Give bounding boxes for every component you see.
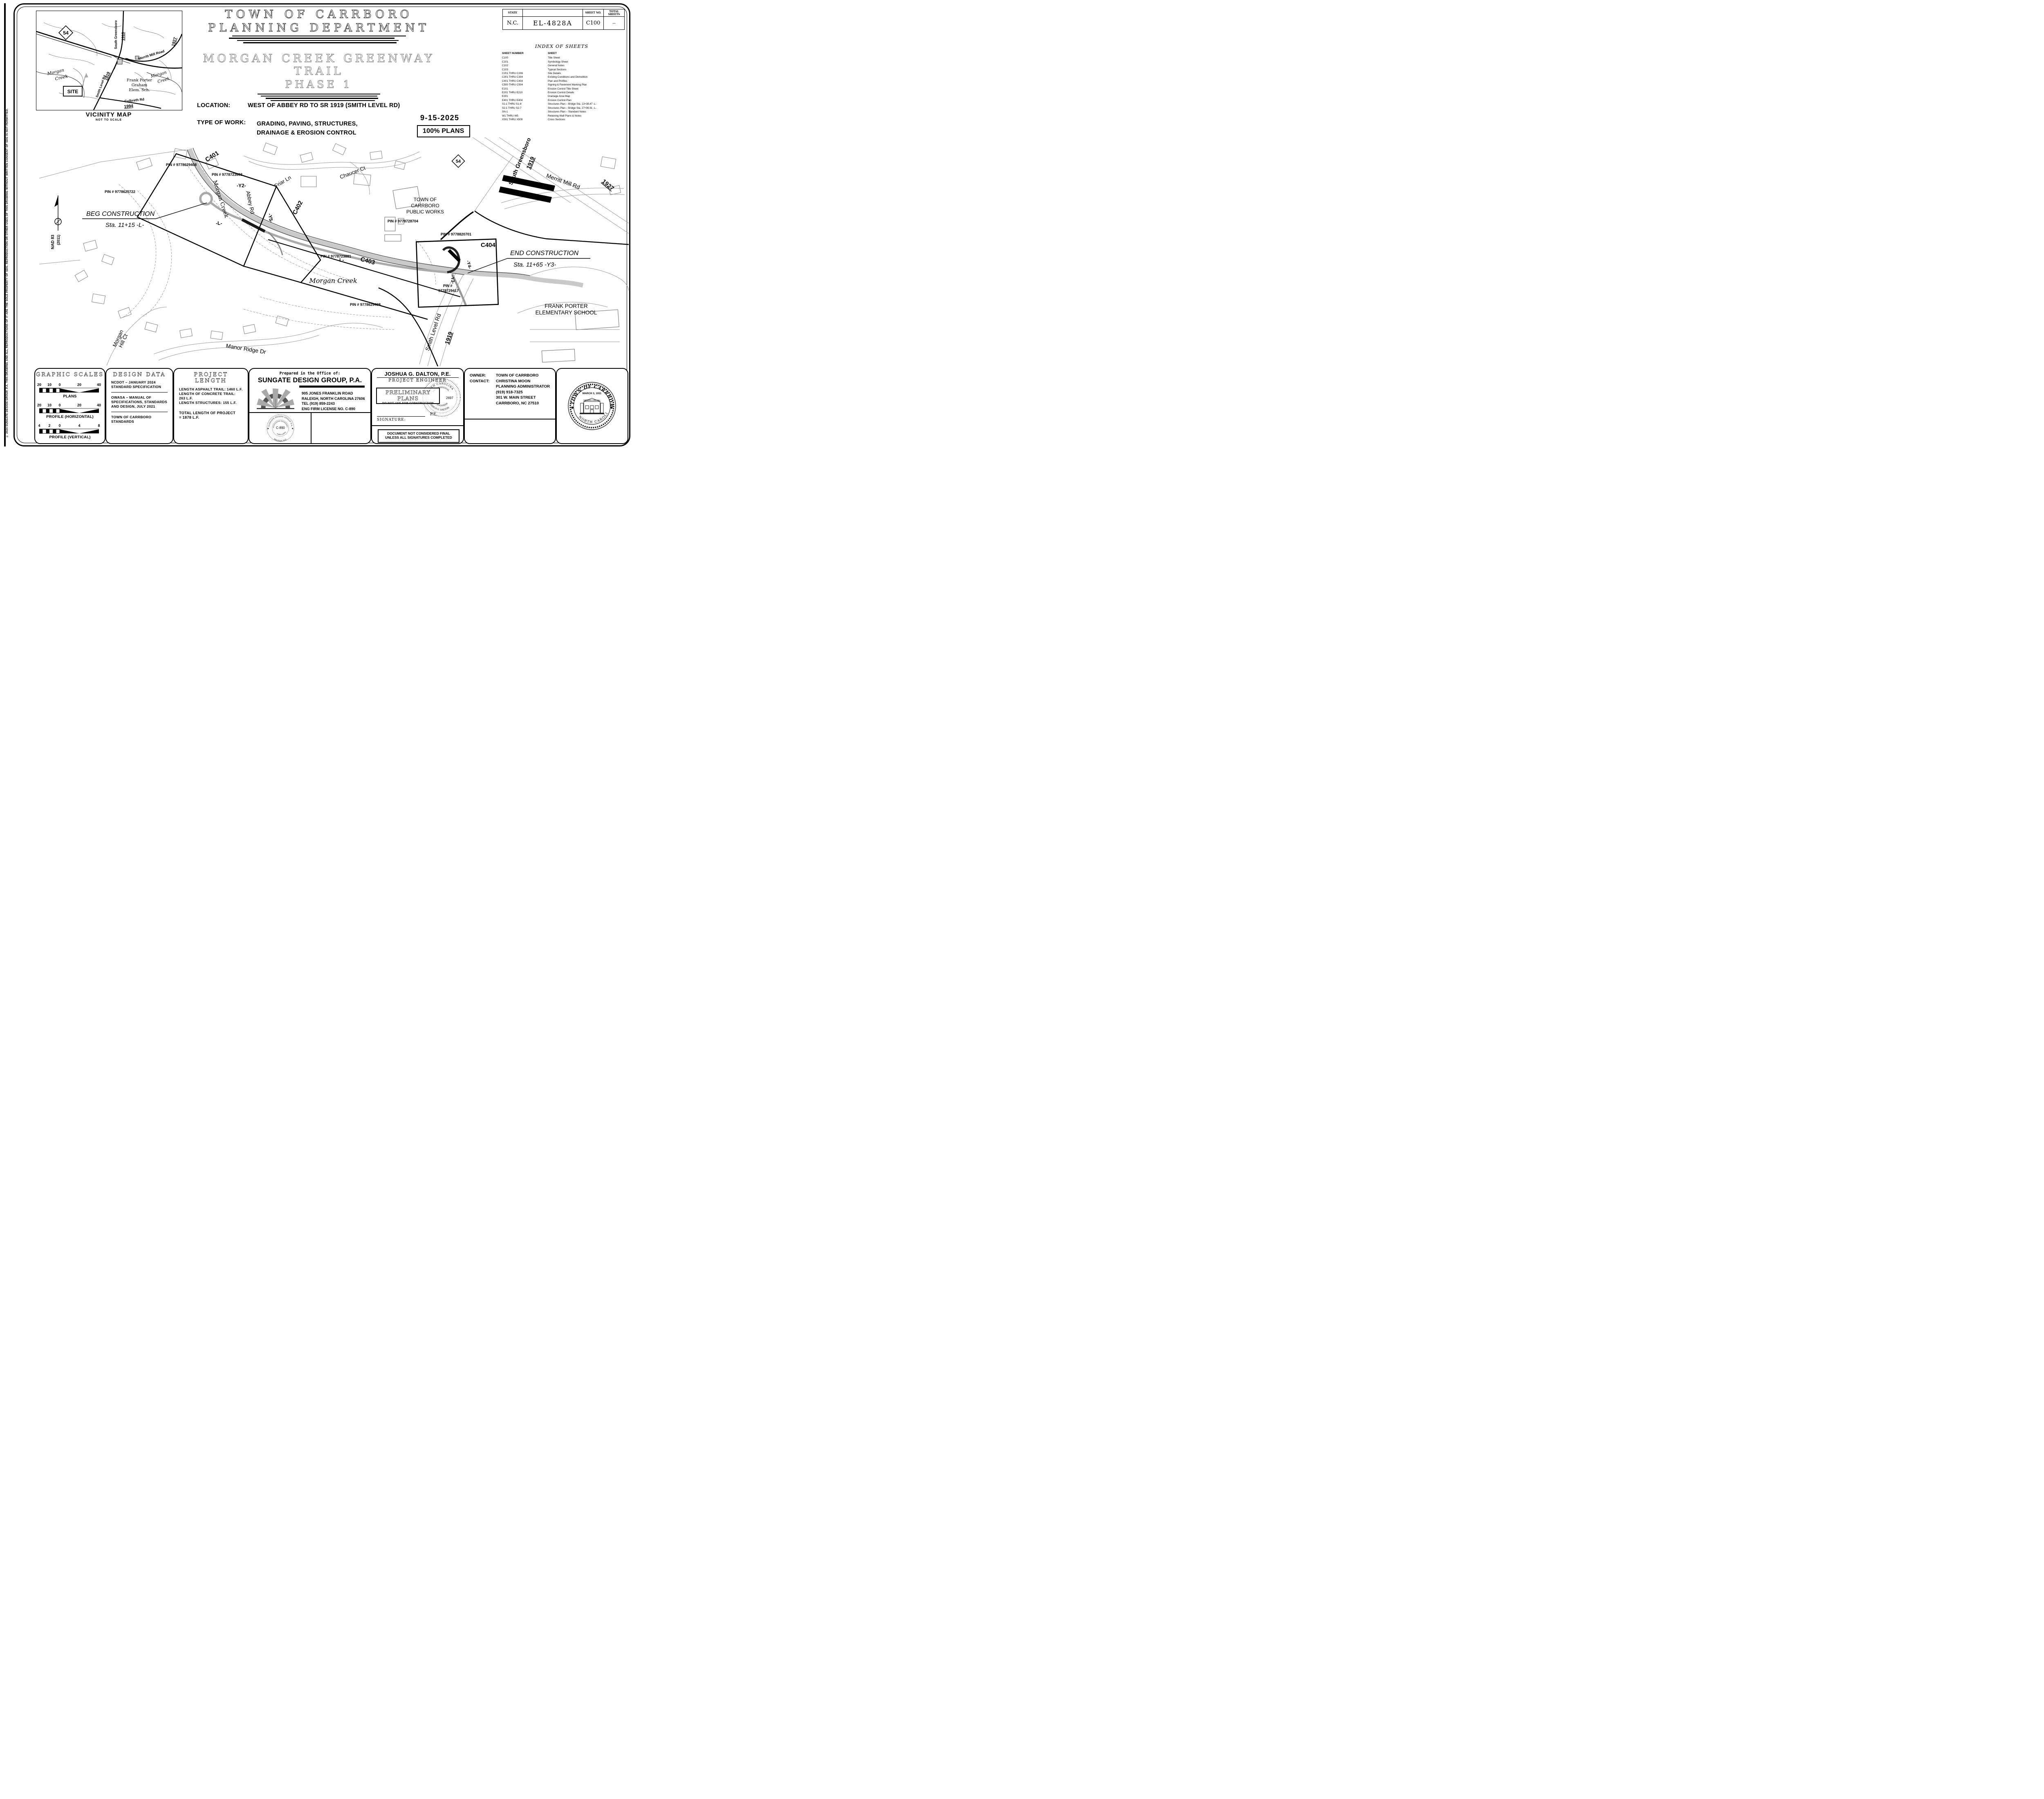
scale-tick: 20 <box>77 403 81 407</box>
index-name: Erosion Control Details <box>548 91 621 94</box>
plan-viewport-c401 <box>137 154 276 266</box>
firm-seal-city: RALEIGH, N.C. <box>273 438 287 442</box>
plan-c404-label: C404 <box>481 242 496 249</box>
design-data-box: DESIGN DATA NCDOT – JANUARY 2024 STANDAR… <box>105 368 173 444</box>
design-data-item-town: TOWN OF CARRBORO STANDARDS <box>111 415 168 424</box>
north-arrow-icon <box>54 195 61 231</box>
plan-viewport-edge <box>244 266 301 283</box>
index-name: Signing & Pavement Marking Plan <box>548 83 621 87</box>
plan-route54-shield: 54 <box>452 155 464 167</box>
agency-title-line1: TOWN OF CARRBORO <box>192 8 446 21</box>
plan-y2-label: -Y2- <box>237 183 246 188</box>
plan-school-2: ELEMENTARY SCHOOL <box>536 310 597 316</box>
project-no-value: EL-4828A <box>523 17 583 30</box>
index-num: C301 THRU C304 <box>502 75 545 79</box>
vicinity-merritt-label: Merritt Mill Road <box>138 49 165 61</box>
sheet-no-label: SHEET NO. <box>583 9 604 17</box>
scale-tick: 2 <box>48 424 50 428</box>
plan-date: 9-15-2025 <box>420 114 459 122</box>
svg-text:RALEIGH, N.C.: RALEIGH, N.C. <box>273 438 287 442</box>
plan-nad83-label: NAD 83 <box>51 235 55 249</box>
index-num: E101 <box>502 87 545 91</box>
contact-label: CONTACT: <box>470 379 496 384</box>
plan-y3-label: -Y3- <box>450 275 455 284</box>
scale-bar-graphic <box>39 428 101 434</box>
index-num: C401 THRU C404 <box>502 79 545 83</box>
index-name: Erosion Control Plan <box>548 99 621 102</box>
type-of-work-line1: GRADING, PAVING, STRUCTURES, <box>257 121 358 127</box>
plan-manor-ridge: Manor Ridge Dr <box>226 342 267 355</box>
plan-smith-1919: 1919 <box>444 331 454 345</box>
index-name: Retaining Wall Plans & Notes <box>548 114 621 118</box>
beg-construction-label: BEG CONSTRUCTION <box>86 211 155 218</box>
type-of-work-label: TYPE OF WORK: <box>197 119 250 137</box>
scale-bar-graphic <box>39 408 101 413</box>
project-length-title: PROJECT LENGTH <box>179 369 243 384</box>
graphic-scales-box: GRAPHIC SCALES 20 10 0 20 40 PLANS 20 10… <box>34 368 105 444</box>
sheet-titles: TOWN OF CARRBORO PLANNING DEPARTMENT MOR… <box>192 8 446 101</box>
plan-1927: 1927 <box>601 178 615 192</box>
plan-map: NAD 83 (2011) BEG CONSTRUCTION Sta. 11+1… <box>15 137 629 366</box>
not-final-line1: DOCUMENT NOT CONSIDERED FINAL <box>379 431 459 435</box>
index-num: SN-1 <box>502 110 545 114</box>
plan-abbey-rd: Abbey Rd <box>245 191 256 215</box>
town-seal-box: TOWN OF CARRBORO NORTH CAROLINA MARCH 3,… <box>556 368 628 444</box>
end-construction-sta: Sta. 11+65 -Y3- <box>513 261 556 268</box>
index-name: Drainage Area Map <box>548 94 621 98</box>
copyright-strip: © 2024 SUNGATE DESIGN GROUP, P.A. THIS D… <box>6 29 9 437</box>
firm-address-4: ENG FIRM LICENSE NO. C-890 <box>302 406 365 412</box>
town-seal-date: MARCH 3, 1911 <box>583 392 602 395</box>
index-num: E301 <box>502 94 545 98</box>
plan-chaucer-ct: Chaucer Ct <box>339 165 366 180</box>
not-final-line2: UNLESS ALL SIGNATURES COMPLETED <box>379 435 459 440</box>
index-name: Site Details <box>548 72 621 75</box>
signature-line <box>377 416 425 417</box>
plan-y5-label: -Y5- <box>267 213 274 223</box>
firm-seal-license: C-890 <box>276 426 285 430</box>
firm-rule <box>299 386 365 388</box>
title-underlines-2 <box>192 94 446 101</box>
index-num: E401 THRU E404 <box>502 99 545 102</box>
scale-tick: 10 <box>47 383 52 387</box>
plan-sg-1919: 1919 <box>525 155 536 170</box>
index-num: C103 <box>502 68 545 72</box>
location-value: WEST OF ABBEY RD TO SR 1919 (SMITH LEVEL… <box>248 102 400 109</box>
total-sheets-label: TOTAL SHEETS <box>604 9 625 17</box>
index-num: E201 THRU E210 <box>502 91 545 94</box>
index-title: INDEX OF SHEETS <box>502 43 621 49</box>
scale-bar-profile-v: 4 2 0 4 8 PROFILE (VERTICAL) <box>39 424 101 441</box>
index-num: C201 THRU C206 <box>502 72 545 75</box>
firm-address-3: TEL (919) 859-2243 <box>302 401 365 406</box>
plan-hwy54-bridges <box>499 175 555 203</box>
plan-public-works-3: PUBLIC WORKS <box>406 209 444 215</box>
vicinity-site-box: SITE <box>63 86 82 96</box>
vicinity-greensboro-label: South Greensboro <box>114 20 118 49</box>
vicinity-route54-shield: 54 <box>59 26 73 40</box>
index-name: Existing Conditions and Demolition <box>548 75 621 79</box>
plan-morgan-hill: Morgan Hill Ct <box>111 329 130 350</box>
vicinity-subcaption: NOT TO SCALE <box>36 119 182 121</box>
svg-text:NORTH CAROLINA: NORTH CAROLINA <box>557 369 609 424</box>
vicinity-school-2: Graham <box>132 83 148 87</box>
vicinity-caption-block: VICINITY MAP NOT TO SCALE <box>36 111 182 121</box>
contact-phone: (919) 918-7325 <box>496 390 555 395</box>
index-name: Typical Sections <box>548 68 621 72</box>
index-col-number: SHEET NUMBER <box>502 52 545 55</box>
location-block: LOCATION: WEST OF ABBEY RD TO SR 1919 (S… <box>197 102 426 137</box>
signature-label: SIGNATURE: <box>377 418 406 422</box>
preliminary-plans-note: DO NOT USE FOR CONSTRUCTION <box>377 402 439 405</box>
scale-tick: 8 <box>98 424 100 428</box>
index-num: C100 <box>502 56 545 60</box>
plan-pin-820701: PIN # 9778820701 <box>441 232 471 236</box>
firm-address-1: 905 JONES FRANKLIN ROAD <box>302 391 365 396</box>
prepared-by-label: Prepared in the Office of: <box>249 369 370 376</box>
star-icon: ★ <box>267 427 269 430</box>
scale-tick: 0 <box>58 424 61 428</box>
vicinity-smith-level-rd <box>94 63 117 110</box>
beg-construction-sta: Sta. 11+15 -L- <box>105 222 144 229</box>
total-sheets-value: -- <box>604 17 625 30</box>
plan-c402-label: C402 <box>291 200 305 216</box>
plan-pin-729417-b: 9778729417 <box>438 289 459 293</box>
scale-label-plans: PLANS <box>39 394 101 399</box>
plan-pin-728704: PIN # 9778728704 <box>388 219 418 223</box>
firm-logo-sunrise-icon <box>256 388 295 410</box>
project-length-box: PROJECT LENGTH LENGTH ASPHALT TRAIL: 146… <box>173 368 249 444</box>
plan-l-center: -L- <box>338 257 344 263</box>
plan-route54-label: 54 <box>456 159 461 164</box>
scale-bar-graphic <box>39 387 101 393</box>
length-structures: LENGTH STRUCTURES: 155 L.F. <box>179 401 243 405</box>
end-construction-callout: END CONSTRUCTION Sta. 11+65 -Y3- <box>468 250 590 273</box>
engineer-name: JOSHUA G. DALTON, P.E. <box>372 369 463 377</box>
index-num: S2-1 THRU S2-7 <box>502 106 545 110</box>
design-data-title: DESIGN DATA <box>111 369 168 378</box>
index-name: Erosion Control Title Sheet <box>548 87 621 91</box>
index-name: Structures Plan – Bridge Sta. 13+38.47 -… <box>548 102 621 106</box>
plan-c401-label: C401 <box>204 150 220 163</box>
not-final-box: DOCUMENT NOT CONSIDERED FINAL UNLESS ALL… <box>378 429 459 443</box>
owner-label: OWNER: <box>470 373 496 379</box>
scale-tick: 0 <box>58 403 61 407</box>
vicinity-1927-label: 1927 <box>171 37 177 47</box>
index-num: X501 THRU X509 <box>502 118 545 121</box>
scale-tick: 40 <box>97 383 101 387</box>
scale-tick: 40 <box>97 403 101 407</box>
engineer-seal-number: 2697 <box>446 396 453 400</box>
type-of-work-line2: DRAINAGE & EROSION CONTROL <box>257 130 356 136</box>
vicinity-morgan-creek-2b: Creek <box>157 76 170 84</box>
scale-tick: 4 <box>38 424 40 428</box>
index-num: C500 THRU C504 <box>502 83 545 87</box>
plan-pin-729417-a: PIN # <box>443 284 453 288</box>
design-data-item-ncdot: NCDOT – JANUARY 2024 STANDARD SPECIFICAT… <box>111 380 168 389</box>
star-icon: ★ <box>291 427 294 430</box>
owner-row: OWNER: TOWN OF CARRBORO <box>470 373 555 379</box>
index-name: Symbology Sheet <box>548 60 621 64</box>
engineer-box: JOSHUA G. DALTON, P.E. PROJECT ENGINEER … <box>371 368 464 444</box>
plan-public-works-1: TOWN OF <box>414 197 437 202</box>
pe-suffix: P.E. <box>430 412 437 417</box>
divider <box>111 412 168 412</box>
divider <box>311 412 312 443</box>
firm-box: Prepared in the Office of: SUNGATE DESIG… <box>249 368 371 444</box>
graphic-scales-title: GRAPHIC SCALES <box>35 369 105 378</box>
plan-nad83-year: (2011) <box>56 235 61 245</box>
firm-name: SUNGATE DESIGN GROUP, P.A. <box>249 377 370 384</box>
total-length-label: TOTAL LENGTH OF PROJECT <box>179 411 243 415</box>
plan-friar-ln: Friar Ln <box>273 174 292 189</box>
divider <box>465 419 555 419</box>
design-data-item-owasa: OWASA – MANUAL OF SPECIFICATIONS, STANDA… <box>111 395 168 409</box>
state-value: N.C. <box>503 17 523 30</box>
scale-label-profile-h: PROFILE (HORIZONTAL) <box>39 415 101 419</box>
town-seal: TOWN OF CARRBORO NORTH CAROLINA MARCH 3,… <box>557 369 628 443</box>
length-asphalt: LENGTH ASPHALT TRAIL: 1460 L.F. <box>179 387 243 392</box>
vicinity-school-1: Frank Porter <box>127 78 152 83</box>
state-label: STATE <box>503 9 523 17</box>
plan-pin-bottom: PIN # 9778629408 <box>350 303 381 307</box>
vicinity-route54-label: 54 <box>63 30 69 36</box>
agency-title-line2: PLANNING DEPARTMENT <box>192 22 446 34</box>
vicinity-school-3: Elem. Sch. <box>129 88 150 92</box>
plan-pin-top: PIN # 9778629408 <box>166 163 197 167</box>
index-num: C101 <box>502 60 545 64</box>
location-label: LOCATION: <box>197 102 241 109</box>
vicinity-map-drawing: 54 South Greensboro 1919 Merritt Mill Ro… <box>36 11 182 110</box>
index-name: General Notes <box>548 64 621 67</box>
firm-seal: SUNGATE DESIGN GROUP P.A. PROFESSIONAL E… <box>263 413 298 443</box>
title-underlines-1 <box>192 36 446 43</box>
contact-value: CHRISTINA MOON <box>496 379 530 384</box>
scale-label-profile-v: PROFILE (VERTICAL) <box>39 435 101 440</box>
scale-bar-profile-h: 20 10 0 20 40 PROFILE (HORIZONTAL) <box>39 403 101 420</box>
contact-row: CONTACT: CHRISTINA MOON <box>470 379 555 384</box>
scale-bar-plans: 20 10 0 20 40 PLANS <box>39 383 101 400</box>
index-col-sheet: SHEET <box>548 52 621 55</box>
end-construction-label: END CONSTRUCTION <box>510 250 579 257</box>
divider <box>111 392 168 393</box>
vicinity-1994-label: 1994 <box>124 104 134 109</box>
vicinity-sg-route-label: 1919 <box>121 32 126 40</box>
owner-value: TOWN OF CARRBORO <box>496 373 538 379</box>
plan-y4-label: -Y4- <box>465 260 472 270</box>
vicinity-morgan-creek-1b: Creek <box>54 74 68 82</box>
project-title-line1: MORGAN CREEK GREENWAY TRAIL <box>192 52 446 78</box>
vicinity-caption: VICINITY MAP <box>36 111 182 118</box>
town-seal-hall-label: CARRBORO TOWN HALL <box>583 399 600 401</box>
index-name: Structures Plan – Standard Notes <box>548 110 621 114</box>
plans-status-box: 100% PLANS <box>417 125 470 137</box>
index-num: S1-1 THRU S1-8 <box>502 102 545 106</box>
preliminary-plans-box: PRELIMINARY PLANS DO NOT USE FOR CONSTRU… <box>376 388 440 404</box>
scale-tick: 20 <box>37 383 41 387</box>
plan-pin-723603: PIN # 9778723603 <box>212 173 242 177</box>
contact-role: PLANNING ADMINISTRATOR <box>496 384 555 390</box>
owner-box: OWNER: TOWN OF CARRBORO CONTACT: CHRISTI… <box>464 368 556 444</box>
index-name: Title Sheet <box>548 56 621 60</box>
project-title-line2: PHASE 1 <box>192 79 446 90</box>
plan-school-1: FRANK PORTER <box>545 303 588 309</box>
index-name: Structures Plan – Bridge Sta. 27+06.91 -… <box>548 106 621 110</box>
index-name: Cross Sections <box>548 118 621 121</box>
plan-smith-level-rd <box>379 211 629 366</box>
index-num: W1 THRU W5 <box>502 114 545 118</box>
vicinity-map: 54 South Greensboro 1919 Merritt Mill Ro… <box>36 11 182 110</box>
town-seal-state: NORTH CAROLINA <box>557 369 609 424</box>
plan-morgan-creek-center: Morgan Creek <box>309 277 357 285</box>
title-block: STATE SHEET NO. TOTAL SHEETS N.C. EL-482… <box>502 9 625 30</box>
index-of-sheets: INDEX OF SHEETS SHEET NUMBER SHEET C100T… <box>502 43 621 121</box>
plan-l-upper: -L- <box>216 220 222 226</box>
vicinity-site-label: SITE <box>67 89 78 94</box>
firm-address-block: 905 JONES FRANKLIN ROAD RALEIGH, NORTH C… <box>302 391 365 411</box>
firm-address-2: RALEIGH, NORTH CAROLINA 27606 <box>302 396 365 402</box>
contact-city: CARRBORO, NC 27510 <box>496 401 555 406</box>
sheet-no-value: C100 <box>583 17 604 30</box>
scale-tick: 20 <box>77 383 81 387</box>
scale-tick: 10 <box>47 403 52 407</box>
total-length-value: = 1878 L.F. <box>179 415 243 420</box>
vicinity-culbreth-label: Culbreth Rd <box>124 97 144 103</box>
divider <box>372 425 463 426</box>
scale-tick: 20 <box>37 403 41 407</box>
plans-status: 100% PLANS <box>423 128 464 135</box>
scale-tick: 0 <box>58 383 61 387</box>
index-num: C102 <box>502 64 545 67</box>
preliminary-plans-label: PRELIMINARY PLANS <box>377 390 439 402</box>
beg-construction-callout: BEG CONSTRUCTION Sta. 11+15 -L- <box>82 203 207 229</box>
length-concrete: LENGTH OF CONCRETE TRAIL: 263 L.F. <box>179 392 243 401</box>
project-no-header <box>523 9 583 17</box>
contact-street: 301 W. MAIN STREET <box>496 395 555 401</box>
index-name: Plan and Profiles <box>548 79 621 83</box>
plan-pin-723881: PIN # 9778723881 <box>320 254 351 258</box>
scale-tick: 4 <box>78 424 80 428</box>
plan-pin-625722: PIN # 9778625722 <box>105 190 135 194</box>
plan-public-works-2: CARRBORO <box>411 203 439 209</box>
